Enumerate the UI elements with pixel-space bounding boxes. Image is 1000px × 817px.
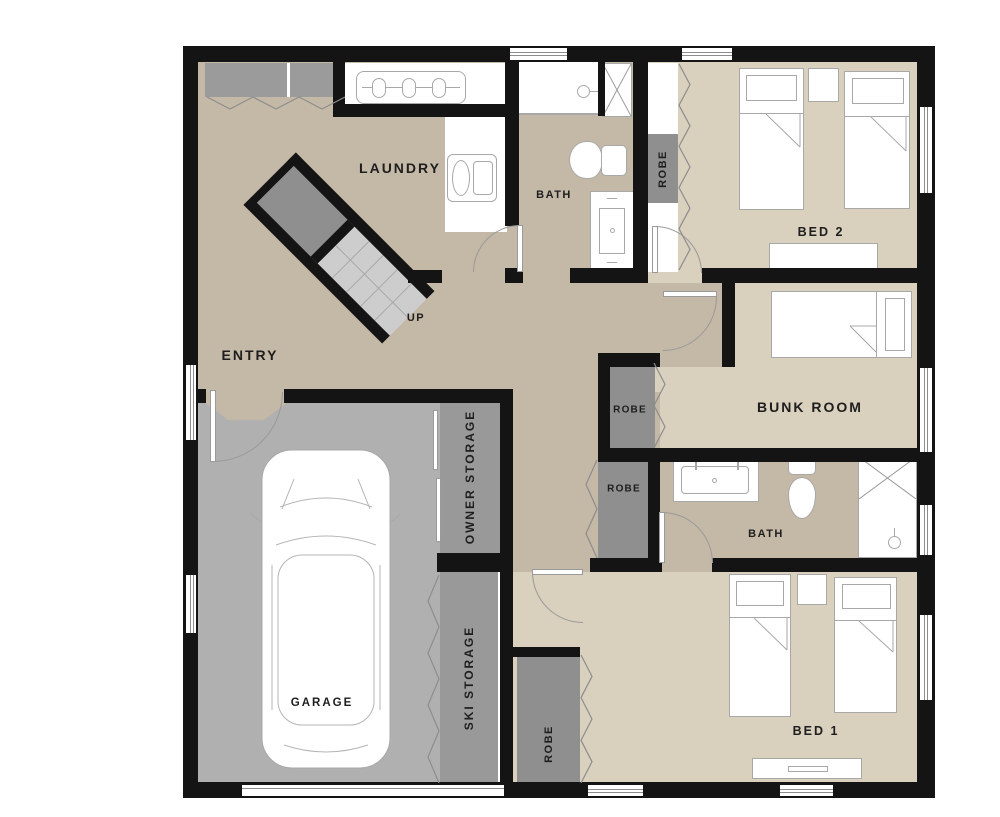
owner-storage-doors bbox=[433, 410, 438, 470]
bed bbox=[834, 577, 897, 713]
wall-robe-bed1-n bbox=[513, 647, 580, 657]
vanity-upper-drain bbox=[610, 228, 615, 233]
window bbox=[780, 785, 833, 796]
toilet-upper-tank bbox=[601, 145, 627, 176]
wall-robe-bunk-w bbox=[598, 367, 610, 448]
laundry-knob-3 bbox=[432, 78, 446, 98]
hanging-rod-icon bbox=[653, 363, 666, 448]
dresser bbox=[769, 243, 878, 270]
wall-hall-garage-2 bbox=[284, 389, 513, 403]
nightstand bbox=[808, 68, 839, 102]
shower-lower bbox=[858, 456, 917, 500]
robe-bunk-label: ROBE bbox=[613, 405, 647, 416]
shower-lower-arm bbox=[894, 528, 895, 537]
wall-owner-ski bbox=[437, 553, 513, 572]
floor-plan: LAUNDRY BATH ROBE BED 2 UP ENTRY ROBE BU… bbox=[0, 0, 1000, 817]
window bbox=[920, 505, 932, 555]
robe-hall bbox=[598, 462, 648, 558]
hanging-rod-icon bbox=[678, 64, 691, 270]
wall-bath-bed1-2 bbox=[712, 558, 920, 572]
wall-bunk-bath bbox=[598, 448, 920, 462]
window bbox=[920, 615, 932, 700]
dresser bbox=[752, 758, 862, 779]
window bbox=[920, 107, 932, 193]
coat-closet-divider bbox=[287, 63, 290, 97]
bath-upper-label: BATH bbox=[536, 189, 572, 201]
wall-bath-upper-w bbox=[505, 46, 519, 226]
washer-door bbox=[452, 160, 470, 196]
window bbox=[510, 48, 567, 60]
bed1-label: BED 1 bbox=[793, 724, 840, 738]
owner-storage-label: OWNER STORAGE bbox=[463, 410, 477, 544]
entry-coat-closet bbox=[205, 63, 345, 97]
washer-panel bbox=[473, 161, 493, 195]
wall-bath-upper-e bbox=[633, 46, 648, 272]
car bbox=[250, 445, 400, 775]
wall-bath-bed1-1 bbox=[590, 558, 662, 572]
laundry-label: LAUNDRY bbox=[359, 160, 441, 176]
hanging-rod-icon bbox=[207, 96, 345, 110]
entry-label: ENTRY bbox=[222, 347, 279, 363]
shower-upper-glass bbox=[518, 113, 598, 115]
entry-sidelight bbox=[186, 365, 196, 440]
bed bbox=[844, 71, 910, 209]
window bbox=[186, 575, 196, 633]
wall-storage-e bbox=[500, 403, 513, 783]
bed2-label: BED 2 bbox=[798, 225, 845, 239]
garage-door bbox=[242, 785, 504, 796]
wall-bunk-entry bbox=[722, 283, 735, 367]
wall-south-bath-upper-2 bbox=[570, 268, 648, 283]
ski-storage-label: SKI STORAGE bbox=[462, 626, 476, 730]
bath-lower-label: BATH bbox=[748, 528, 784, 540]
window bbox=[920, 368, 932, 452]
bed bbox=[739, 68, 804, 210]
robe-bed1-label: ROBE bbox=[543, 725, 555, 763]
laundry-knob-2 bbox=[402, 78, 416, 98]
wall-bed2-s bbox=[702, 268, 920, 283]
wall-hall-bunk bbox=[598, 353, 660, 367]
robe-bed1 bbox=[517, 655, 580, 783]
shower-lower-stall bbox=[858, 499, 917, 558]
hanging-rod-icon bbox=[585, 460, 598, 558]
wall-closet-upper-w bbox=[598, 46, 605, 116]
stair-foot-wall bbox=[408, 270, 442, 283]
wall-laundry-counter-s bbox=[333, 104, 507, 117]
shower-lower-head bbox=[888, 536, 901, 549]
window bbox=[588, 785, 643, 796]
toilet-upper-bowl bbox=[569, 141, 603, 179]
window bbox=[682, 48, 732, 60]
garage-label: GARAGE bbox=[291, 697, 353, 709]
hanging-rod-icon bbox=[580, 655, 593, 783]
owner-storage-doors bbox=[436, 478, 441, 542]
wall-hall-garage-1 bbox=[198, 389, 206, 403]
bunk-bed bbox=[771, 291, 912, 358]
nightstand bbox=[797, 574, 827, 605]
hanging-rod-icon bbox=[427, 575, 440, 783]
robe-bed2-label: ROBE bbox=[657, 150, 669, 188]
robe-hall-label: ROBE bbox=[607, 484, 641, 495]
linen-closet-upper bbox=[602, 63, 632, 117]
bed bbox=[729, 574, 791, 717]
bunk-room-label: BUNK ROOM bbox=[757, 399, 863, 415]
laundry-knob-1 bbox=[372, 78, 386, 98]
up-label: UP bbox=[407, 312, 425, 324]
vanity-lower-drain bbox=[712, 478, 717, 483]
